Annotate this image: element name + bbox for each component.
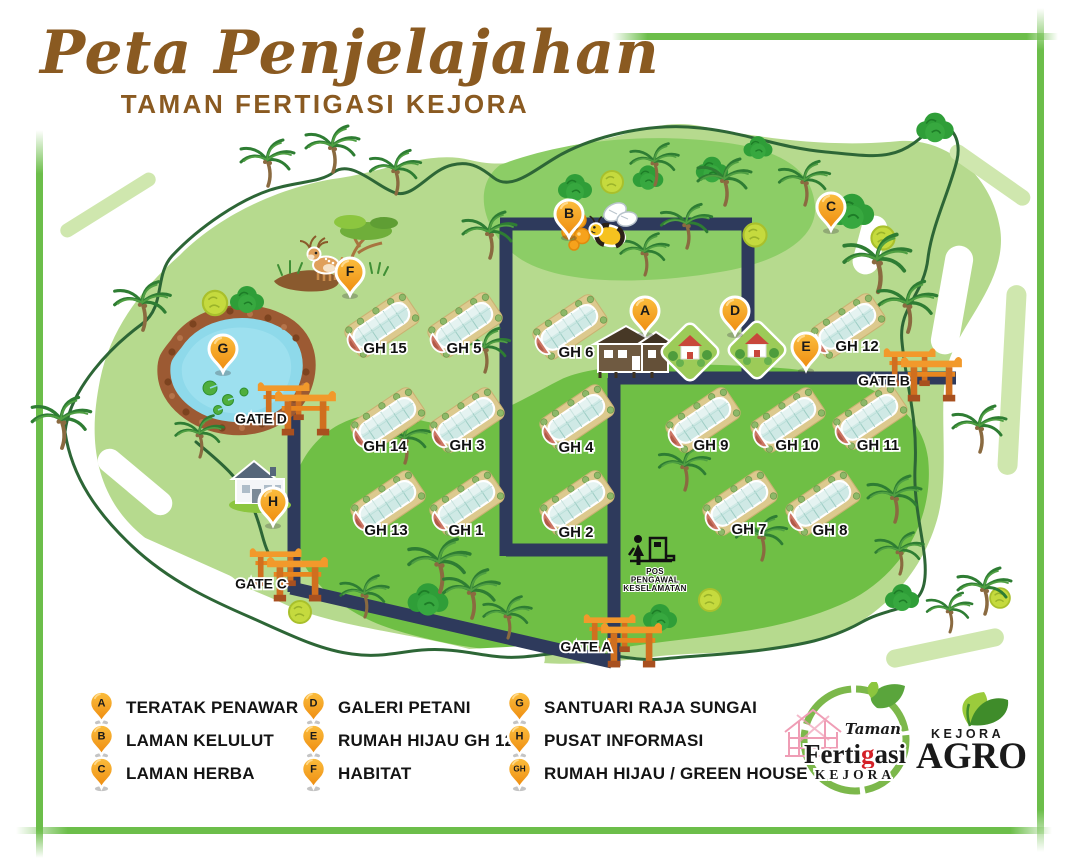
page-subtitle: TAMAN FERTIGASI KEJORA <box>90 89 560 120</box>
kejora-agro-logo: KEJORA AGRO <box>908 690 1058 790</box>
map-pin-letter: G <box>218 340 229 356</box>
guard-post-label-line: KESELAMATAN <box>623 584 686 593</box>
lime-bush-icon <box>601 171 623 193</box>
legend-label: HABITAT <box>338 764 411 784</box>
page-title: Peta Penjelajahan <box>40 22 640 85</box>
lime-bush-icon <box>203 291 227 315</box>
legend-item: C LAMAN HERBA <box>88 757 298 790</box>
legend-column: A TERATAK PENAWAR B LAMAN KELULUT C LAMA… <box>88 691 298 790</box>
palm-tree-icon <box>306 126 359 172</box>
greenhouse-label: GH 10 <box>775 437 818 454</box>
agro-leaves-icon <box>962 692 1008 726</box>
greenhouse-label: GH 15 <box>363 340 406 357</box>
map-pin-letter: E <box>801 338 810 354</box>
palm-tree-icon <box>241 140 294 186</box>
map-pin-letter: A <box>640 302 650 318</box>
map-pin-letter: F <box>346 263 355 279</box>
svg-text:E: E <box>310 730 317 742</box>
pale-brush-streak <box>997 285 1027 476</box>
gate-label: GATE A <box>560 639 611 655</box>
gate-label: GATE D <box>235 411 287 427</box>
legend-pin-icon: C <box>88 756 115 792</box>
legend-item: A TERATAK PENAWAR <box>88 691 298 724</box>
greenhouse-label: GH 5 <box>446 340 481 357</box>
greenhouse-label: GH 7 <box>731 521 766 538</box>
greenhouse-label: GH 3 <box>449 437 484 454</box>
legend-pin-icon: G <box>506 690 533 726</box>
gate-label: GATE C <box>235 576 287 592</box>
legend-label: GALERI PETANI <box>338 698 471 718</box>
title-block: Peta Penjelajahan TAMAN FERTIGASI KEJORA <box>40 22 640 120</box>
pale-brush-streak <box>884 627 1005 670</box>
logo-fertigasi-text: Fertigasi <box>804 739 906 769</box>
logo-taman-text: Taman <box>845 720 901 738</box>
legend-label: PUSAT INFORMASI <box>544 731 703 751</box>
logo-kejora-text: KEJORA <box>815 767 895 782</box>
legend-item: G SANTUARI RAJA SUNGAI <box>506 691 808 724</box>
greenhouse-label: GH 2 <box>558 524 593 541</box>
svg-text:C: C <box>98 763 106 775</box>
legend-item: GH RUMAH HIJAU / GREEN HOUSE <box>506 757 808 790</box>
lime-bush-icon <box>699 589 721 611</box>
gate-label: GATE B <box>858 373 910 389</box>
palm-tree-icon <box>32 397 90 448</box>
legend-label: RUMAH HIJAU GH 12 <box>338 731 514 751</box>
svg-text:F: F <box>310 763 317 775</box>
svg-text:GH: GH <box>513 764 525 773</box>
greenhouse-label: GH 4 <box>558 439 594 456</box>
bush-icon <box>916 113 953 143</box>
greenhouse-label: GH 12 <box>835 338 878 355</box>
svg-text:G: G <box>515 697 524 709</box>
svg-text:A: A <box>98 697 106 709</box>
legend-item: B LAMAN KELULUT <box>88 724 298 757</box>
legend-pin-icon: F <box>300 756 327 792</box>
legend-label: SANTUARI RAJA SUNGAI <box>544 698 757 718</box>
map-pin-letter: C <box>826 198 836 214</box>
svg-text:H: H <box>516 730 524 742</box>
pale-brush-streak <box>58 170 159 240</box>
legend-column: D GALERI PETANI E RUMAH HIJAU GH 12 F HA… <box>300 691 514 790</box>
palm-tree-icon <box>927 593 972 632</box>
greenhouse-label: GH 8 <box>812 522 847 539</box>
legend-pin-icon: D <box>300 690 327 726</box>
greenhouse-label: GH 11 <box>857 437 900 454</box>
svg-text:B: B <box>98 730 106 742</box>
legend-pin-icon: E <box>300 723 327 759</box>
legend-pin-icon: B <box>88 723 115 759</box>
poster: POSPENGAWALKESELAMATAN GATE AGATE BGATE … <box>0 0 1080 864</box>
map-pin-letter: B <box>564 205 574 221</box>
legend-item: F HABITAT <box>300 757 514 790</box>
legend-item: E RUMAH HIJAU GH 12 <box>300 724 514 757</box>
legend-pin-icon: A <box>88 690 115 726</box>
map-pin-letter: H <box>268 493 278 509</box>
lime-bush-icon <box>289 601 311 623</box>
legend-item: H PUSAT INFORMASI <box>506 724 808 757</box>
greenhouse-label: GH 9 <box>693 437 728 454</box>
legend-label: TERATAK PENAWAR <box>126 698 298 718</box>
fertigasi-logo: Taman Fertigasi KEJORA <box>775 682 925 808</box>
greenhouse-label: GH 6 <box>558 344 593 361</box>
map-pin-letter: D <box>730 302 740 318</box>
greenhouse-label: GH 1 <box>448 522 483 539</box>
legend-label: RUMAH HIJAU / GREEN HOUSE <box>544 764 808 784</box>
svg-text:D: D <box>310 697 318 709</box>
legend-pin-icon: H <box>506 723 533 759</box>
legend-item: D GALERI PETANI <box>300 691 514 724</box>
legend-label: LAMAN HERBA <box>126 764 255 784</box>
legend-pin-icon: GH <box>506 756 533 792</box>
greenhouse-label: GH 13 <box>364 522 407 539</box>
legend-column: G SANTUARI RAJA SUNGAI H PUSAT INFORMASI… <box>506 691 808 790</box>
legend-label: LAMAN KELULUT <box>126 731 274 751</box>
greenhouse-label: GH 14 <box>363 438 407 455</box>
agro-text: AGRO <box>916 736 1027 777</box>
lime-bush-icon <box>743 223 766 246</box>
